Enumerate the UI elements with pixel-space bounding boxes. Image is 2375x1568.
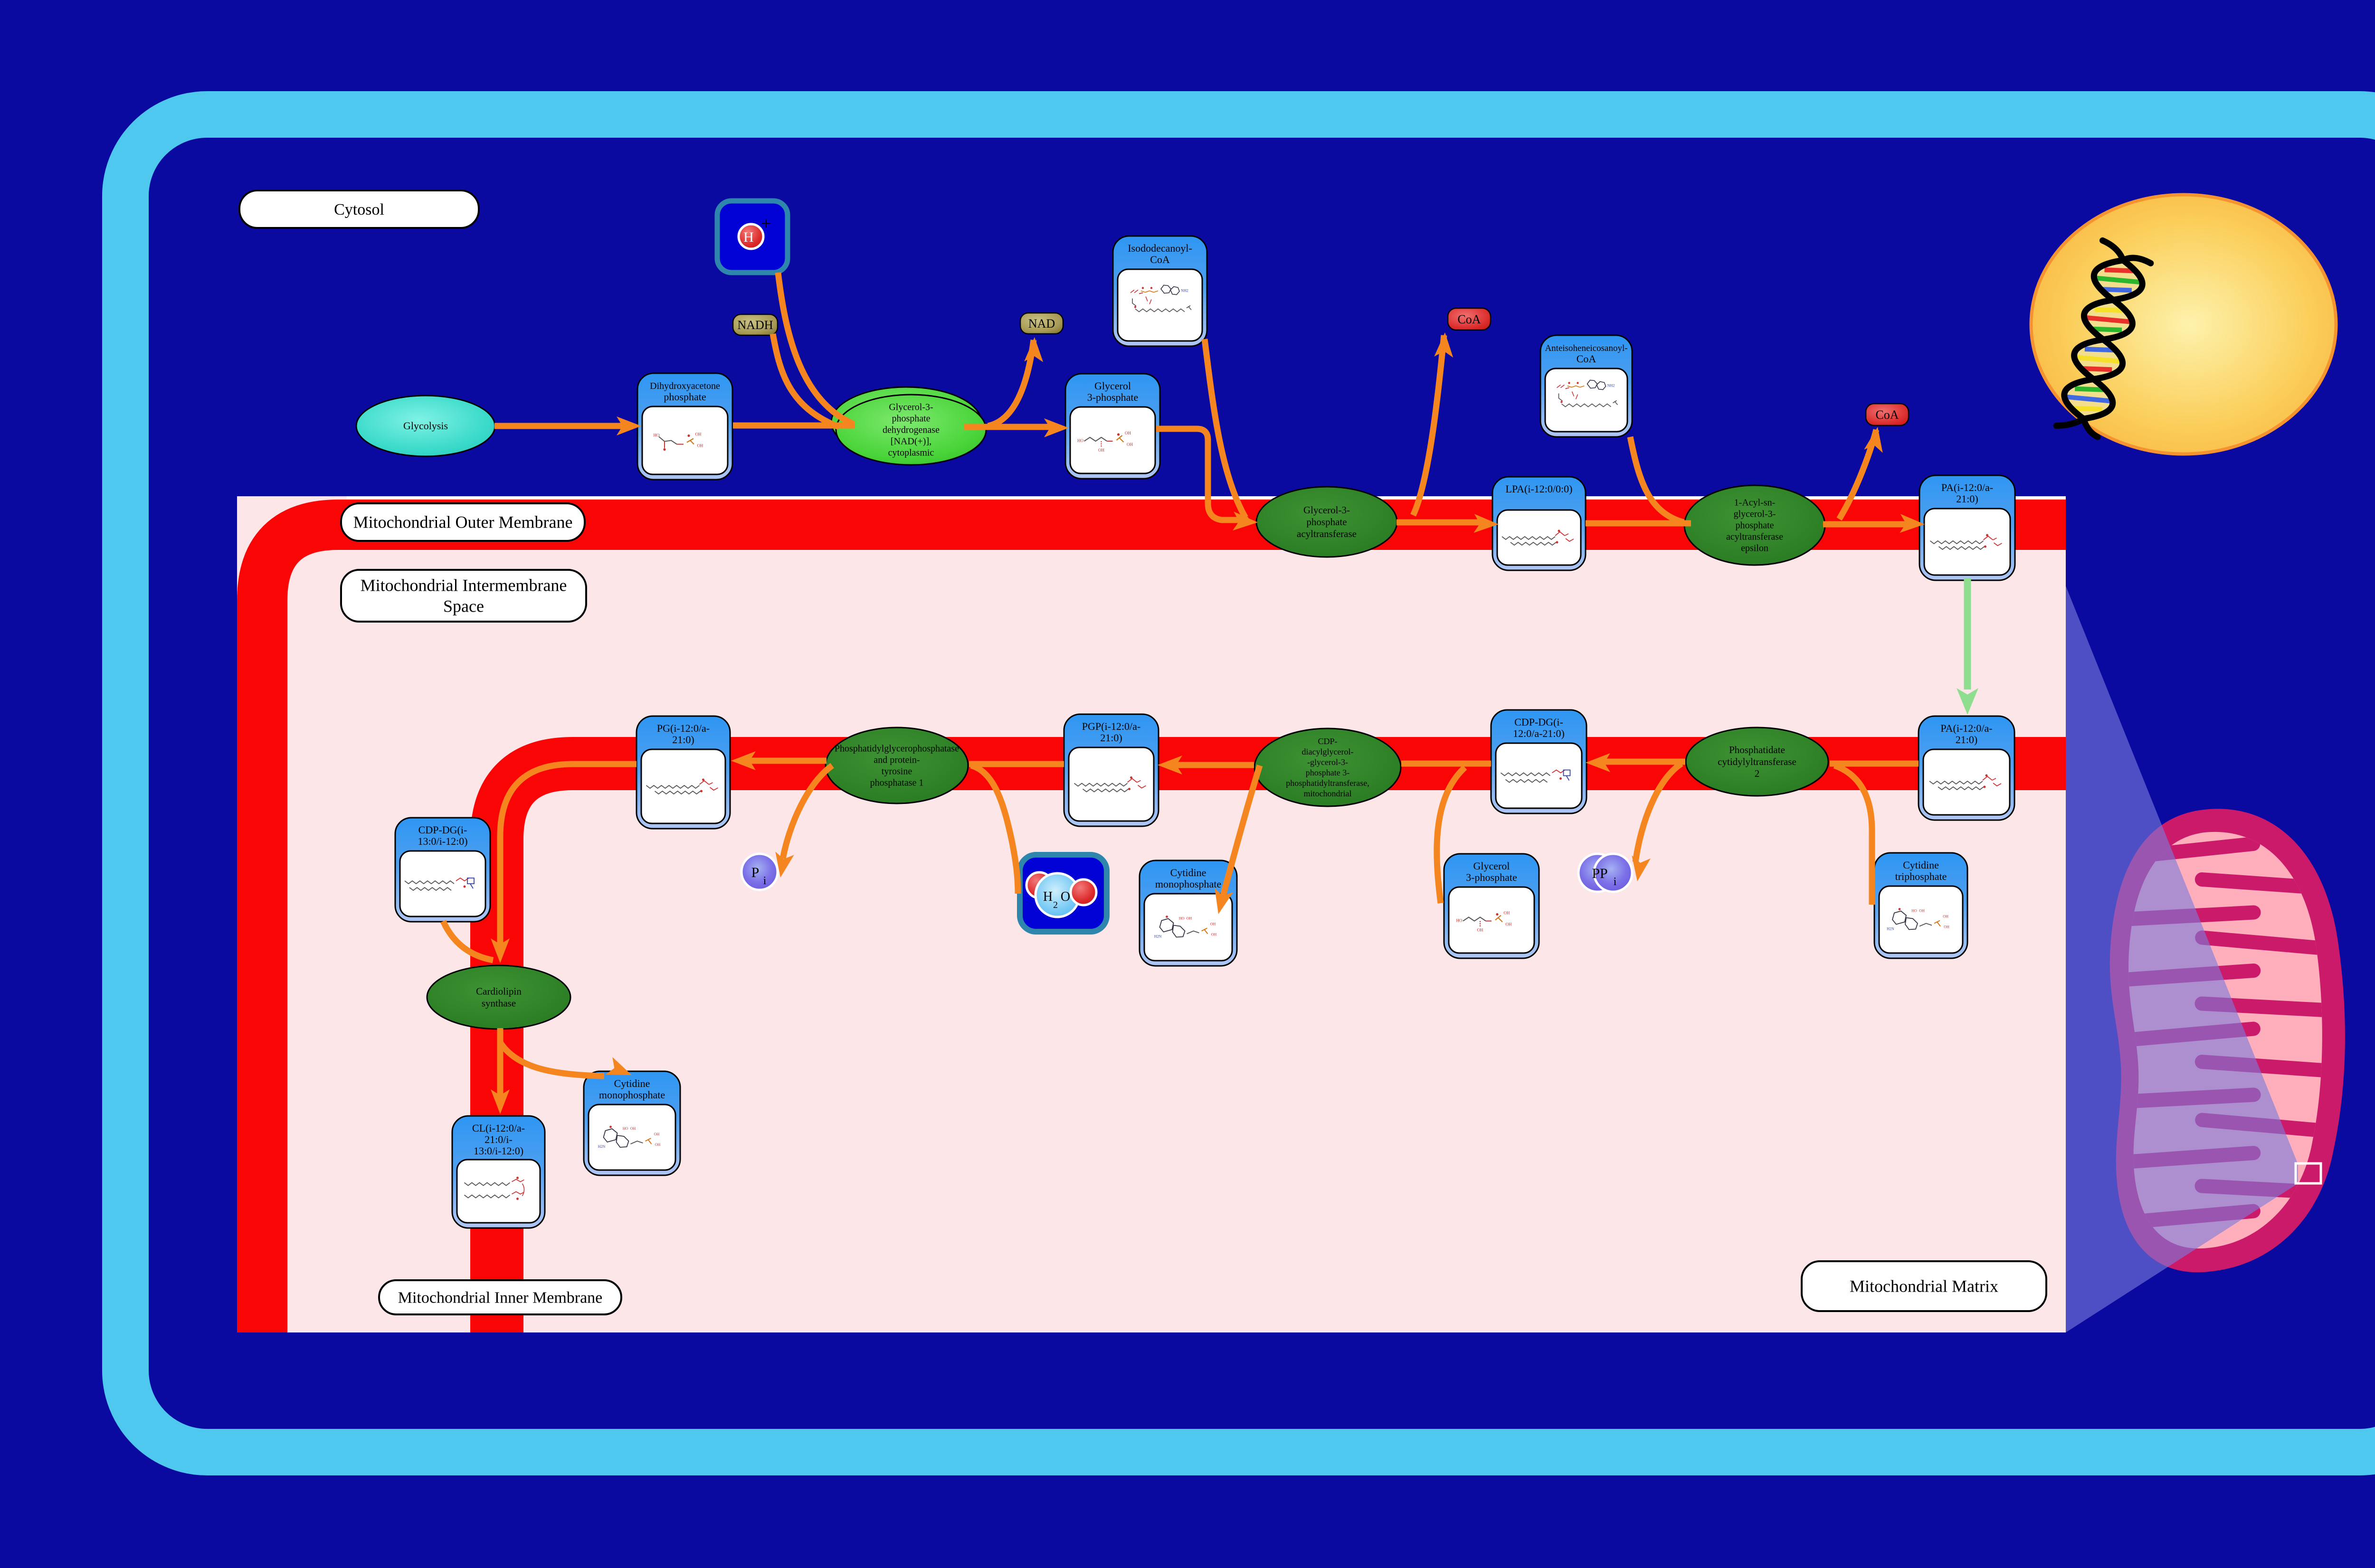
svg-text:PA(i-12:0/a-: PA(i-12:0/a-: [1940, 722, 1992, 734]
svg-text:3-phosphate: 3-phosphate: [1466, 871, 1517, 883]
svg-text:i: i: [763, 875, 767, 887]
svg-text:Glycolysis: Glycolysis: [403, 420, 448, 432]
svg-text:OH: OH: [1210, 922, 1216, 926]
svg-text:13:0/i-12:0): 13:0/i-12:0): [474, 1145, 523, 1157]
svg-text:Isododecanoyl-: Isododecanoyl-: [1128, 242, 1192, 254]
svg-text:Dihydroxyacetone: Dihydroxyacetone: [650, 381, 720, 391]
svg-text:phosphatase 1: phosphatase 1: [870, 778, 924, 788]
svg-text:H: H: [743, 229, 754, 245]
svg-text:Cytidine: Cytidine: [1170, 867, 1206, 878]
svg-text:+: +: [761, 214, 771, 234]
svg-text:O: O: [1061, 889, 1070, 904]
svg-text:cytoplasmic: cytoplasmic: [888, 448, 934, 458]
svg-text:2: 2: [1053, 900, 1058, 910]
svg-text:2: 2: [1755, 768, 1760, 779]
svg-text:H2N: H2N: [1154, 935, 1162, 939]
svg-text:OH: OH: [1943, 915, 1948, 919]
svg-text:21:0): 21:0): [1956, 734, 1977, 746]
svg-text:cytidylyltransferase: cytidylyltransferase: [1718, 756, 1796, 767]
svg-text:3-phosphate: 3-phosphate: [1087, 391, 1139, 403]
svg-text:HO: HO: [623, 1126, 628, 1131]
svg-text:OH: OH: [1127, 442, 1133, 447]
svg-text:HO: HO: [654, 433, 660, 438]
svg-text:Glycerol: Glycerol: [1473, 860, 1510, 872]
svg-text:Anteisoheneicosanoyl-: Anteisoheneicosanoyl-: [1545, 343, 1627, 353]
svg-text:CoA: CoA: [1875, 408, 1899, 422]
svg-text:phosphate: phosphate: [664, 391, 706, 403]
svg-text:CoA: CoA: [1457, 312, 1481, 326]
svg-text:Mitochondrial Outer Membrane: Mitochondrial Outer Membrane: [353, 513, 573, 532]
svg-text:diacylglycerol-: diacylglycerol-: [1302, 747, 1354, 756]
svg-text:glycerol-3-: glycerol-3-: [1734, 509, 1776, 520]
svg-text:epsilon: epsilon: [1741, 543, 1768, 554]
svg-text:1-Acyl-sn-: 1-Acyl-sn-: [1734, 498, 1776, 508]
svg-text:PGP(i-12:0/a-: PGP(i-12:0/a-: [1082, 720, 1140, 732]
svg-text:OH: OH: [697, 444, 703, 448]
svg-text:P: P: [751, 865, 760, 880]
svg-text:Phosphatidate: Phosphatidate: [1729, 744, 1785, 756]
svg-text:Mitochondrial Matrix: Mitochondrial Matrix: [1850, 1277, 1998, 1296]
svg-text:phosphate: phosphate: [1306, 516, 1347, 528]
svg-text:phosphate 3-: phosphate 3-: [1306, 768, 1349, 777]
svg-text:-glycerol-3-: -glycerol-3-: [1307, 757, 1348, 767]
svg-text:Mitochondrial Intermembrane: Mitochondrial Intermembrane: [361, 576, 567, 595]
svg-text:phosphate: phosphate: [1735, 520, 1774, 531]
svg-text:OH: OH: [1098, 448, 1104, 453]
svg-text:Glycerol: Glycerol: [1094, 380, 1131, 392]
svg-text:Cytidine: Cytidine: [1903, 859, 1939, 871]
svg-text:HO: HO: [1456, 918, 1463, 923]
svg-text:OH: OH: [1187, 916, 1192, 921]
svg-text:OH: OH: [695, 432, 702, 437]
svg-text:triphosphate: triphosphate: [1895, 870, 1947, 882]
svg-text:21:0/i-: 21:0/i-: [484, 1133, 513, 1145]
svg-text:Cardiolipin: Cardiolipin: [476, 985, 522, 997]
svg-text:OH: OH: [1919, 909, 1925, 913]
svg-text:Mitochondrial Inner Membrane: Mitochondrial Inner Membrane: [398, 1289, 603, 1307]
svg-text:monophosphate: monophosphate: [1155, 878, 1221, 890]
svg-text:CoA: CoA: [1150, 254, 1170, 265]
svg-text:phosphatidyltransferase,: phosphatidyltransferase,: [1286, 778, 1369, 788]
svg-text:H2N: H2N: [598, 1144, 606, 1149]
svg-text:OH: OH: [1944, 925, 1949, 929]
svg-text:OH: OH: [655, 1143, 661, 1147]
svg-text:acyltransferase: acyltransferase: [1297, 528, 1357, 539]
svg-text:OH: OH: [630, 1126, 636, 1131]
svg-text:21:0): 21:0): [1956, 493, 1978, 505]
svg-text:OH: OH: [654, 1132, 660, 1136]
svg-text:acyltransferase: acyltransferase: [1726, 532, 1783, 542]
svg-text:NH2: NH2: [1181, 289, 1188, 293]
svg-text:NADH: NADH: [737, 318, 773, 332]
svg-text:Cytosol: Cytosol: [334, 201, 384, 218]
svg-text:PA(i-12:0/a-: PA(i-12:0/a-: [1941, 482, 1993, 493]
svg-text:21:0): 21:0): [1100, 732, 1122, 744]
svg-text:HO: HO: [1179, 916, 1185, 921]
svg-text:CDP-DG(i-: CDP-DG(i-: [418, 824, 467, 836]
svg-text:OH: OH: [1211, 933, 1217, 937]
svg-text:CoA: CoA: [1577, 353, 1596, 365]
svg-text:OH: OH: [1506, 922, 1512, 927]
svg-text:OH: OH: [1125, 431, 1131, 435]
svg-text:Space: Space: [443, 597, 484, 616]
svg-text:monophosphate: monophosphate: [599, 1089, 665, 1101]
svg-text:OH: OH: [1504, 911, 1510, 916]
svg-text:Glycerol-3-: Glycerol-3-: [889, 402, 933, 413]
svg-text:and protein-: and protein-: [874, 755, 920, 765]
svg-text:PP: PP: [1592, 866, 1607, 881]
svg-text:NH2: NH2: [1607, 384, 1615, 388]
svg-text:HO: HO: [1077, 438, 1083, 443]
svg-text:CL(i-12:0/a-: CL(i-12:0/a-: [472, 1122, 525, 1134]
svg-text:H2N: H2N: [1887, 927, 1894, 931]
svg-text:phosphate: phosphate: [892, 414, 930, 424]
svg-text:12:0/a-21:0): 12:0/a-21:0): [1513, 727, 1565, 739]
svg-text:tyrosine: tyrosine: [882, 766, 912, 777]
svg-text:HO: HO: [1911, 909, 1917, 913]
svg-text:13:0/i-12:0): 13:0/i-12:0): [418, 835, 467, 847]
svg-text:[NAD(+)],: [NAD(+)],: [891, 436, 931, 447]
svg-text:LPA(i-12:0/0:0): LPA(i-12:0/0:0): [1506, 483, 1573, 495]
svg-text:Phosphatidylglycerophosphatase: Phosphatidylglycerophosphatase: [835, 744, 959, 754]
svg-text:PG(i-12:0/a-: PG(i-12:0/a-: [657, 722, 710, 734]
svg-text:CDP-: CDP-: [1318, 737, 1337, 746]
svg-text:i: i: [1614, 876, 1617, 888]
svg-text:Glycerol-3-: Glycerol-3-: [1303, 504, 1350, 516]
svg-text:dehydrogenase: dehydrogenase: [883, 425, 940, 435]
svg-text:21:0): 21:0): [672, 734, 694, 746]
svg-text:Cytidine: Cytidine: [614, 1077, 650, 1089]
svg-text:synthase: synthase: [482, 997, 516, 1009]
svg-text:NAD: NAD: [1028, 317, 1055, 331]
svg-text:H: H: [1043, 889, 1053, 904]
svg-text:CDP-DG(i-: CDP-DG(i-: [1514, 716, 1563, 728]
svg-text:OH: OH: [1477, 928, 1483, 933]
svg-text:mitochondrial: mitochondrial: [1304, 789, 1352, 798]
